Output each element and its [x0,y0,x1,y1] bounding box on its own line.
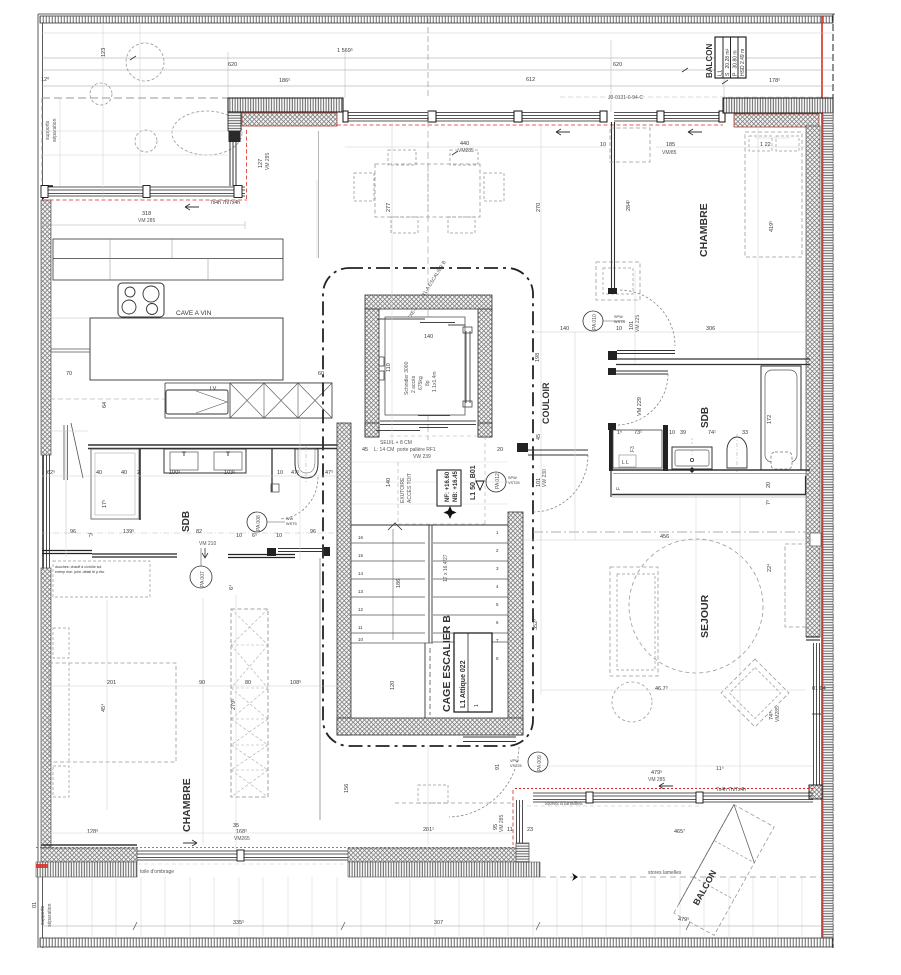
svg-text:VM285: VM285 [458,148,474,154]
svg-text:PA 010: PA 010 [592,314,598,330]
svg-text:15: 15 [358,553,364,558]
svg-text:SEUIL + 8 CM: SEUIL + 8 CM [380,440,412,446]
svg-text:456: 456 [660,534,669,540]
svg-text:140: 140 [424,334,433,340]
svg-text:14: 14 [358,571,364,576]
svg-text:479⁵: 479⁵ [678,916,689,923]
svg-text:7x4h 7h/7x4h: 7x4h 7h/7x4h [716,787,746,793]
svg-text:douches: chauff à c/chôle sol: douches: chauff à c/chôle sol [55,565,101,569]
svg-text:NF: +16.60: NF: +16.60 [445,471,451,502]
svg-text:620: 620 [613,62,622,68]
svg-text:7⁵: 7⁵ [88,532,93,539]
svg-text:L L: L L [622,460,629,466]
svg-text:108⁵: 108⁵ [290,679,301,686]
svg-text:201: 201 [107,680,116,686]
svg-text:CAVE A VIN: CAVE A VIN [176,310,212,317]
svg-text:VM 285: VM 285 [648,777,665,783]
svg-text:1 569⁵: 1 569⁵ [337,47,353,54]
svg-text:WSTS: WSTS [614,320,625,324]
svg-text:270: 270 [536,203,542,212]
svg-text:440: 440 [460,141,469,147]
svg-text:10: 10 [276,533,282,539]
svg-text:17⁵: 17⁵ [101,500,108,508]
svg-text:10: 10 [277,470,283,476]
svg-text:318: 318 [142,211,151,217]
svg-text:VM 285: VM 285 [138,218,155,224]
svg-text:6⁴: 6⁴ [228,584,235,590]
svg-text:279⁵: 279⁵ [230,699,237,710]
svg-text:335⁵: 335⁵ [233,919,244,926]
svg-text:WSTS: WSTS [286,522,297,526]
svg-text:90: 90 [199,680,205,686]
svg-text:01 04: 01 04 [812,686,826,692]
svg-text:277: 277 [386,203,392,212]
svg-text:11: 11 [507,827,513,833]
svg-text:EXUTOIRE: EXUTOIRE [400,477,406,503]
svg-text:Schindler 3000: Schindler 3000 [404,361,410,395]
svg-text:352³: 352³ [533,619,539,630]
svg-text:140: 140 [560,326,569,332]
svg-text:70: 70 [66,371,72,377]
svg-text:1: 1 [474,704,480,707]
svg-text:10: 10 [600,142,606,148]
svg-text:10: 10 [669,430,675,436]
svg-text:74¹: 74¹ [708,430,716,436]
svg-text:8p: 8p [425,380,431,386]
svg-text:120: 120 [390,681,396,690]
svg-text:73¹: 73¹ [634,430,642,436]
svg-text:306: 306 [706,326,715,332]
svg-text:COULOIR: COULOIR [541,382,551,424]
svg-text:45: 45 [536,434,542,440]
svg-text:10: 10 [236,533,242,539]
svg-text:1.1x1.4m: 1.1x1.4m [432,371,438,392]
svg-text:LV: LV [210,386,217,392]
svg-text:103⁵: 103⁵ [224,469,235,476]
svg-text:SDB: SDB [700,407,711,428]
svg-text:F3: F3 [630,446,636,452]
svg-text:123: 123 [101,48,107,57]
svg-text:L1: L1 [718,70,724,76]
svg-text:VST25: VST25 [508,481,520,485]
svg-text:39: 39 [680,430,686,436]
svg-text:96: 96 [70,529,76,535]
svg-text:2 accès: 2 accès [411,375,417,393]
svg-text:127: 127 [258,159,264,168]
svg-text:VPW: VPW [510,759,519,763]
svg-text:10: 10 [616,326,622,332]
svg-text:45⁴: 45⁴ [100,703,107,712]
svg-text:J0-0131-0-94-C: J0-0131-0-94-C [608,95,643,101]
svg-text:VM 285: VM 285 [499,815,505,832]
svg-text:140: 140 [386,478,392,487]
svg-text:12: 12 [358,607,364,612]
svg-text:séparation: séparation [47,903,53,927]
svg-text:62⁵: 62⁵ [47,469,55,476]
svg-text:46.7³: 46.7³ [655,686,668,692]
svg-text:419⁵: 419⁵ [768,221,775,232]
svg-text:SEJOUR: SEJOUR [699,594,711,638]
svg-text:VM 285: VM 285 [265,153,271,170]
svg-text:11: 11 [358,625,363,630]
svg-text:VM 229: VM 229 [637,397,643,416]
svg-text:33: 33 [742,430,748,436]
svg-text:100⁵: 100⁵ [169,469,180,476]
svg-text:47⁵: 47⁵ [325,469,333,476]
svg-text:96: 96 [310,529,316,535]
svg-text:CHAMBRE: CHAMBRE [181,778,193,832]
svg-text:VM265: VM265 [234,836,250,842]
svg-text:13: 13 [358,589,364,594]
svg-text:VM285: VM285 [775,706,781,722]
svg-text:620: 620 [228,62,237,68]
svg-text:VM 210: VM 210 [199,541,216,547]
svg-text:17 x 16.4/27: 17 x 16.4/27 [443,554,449,582]
svg-text:SPW: SPW [614,315,623,319]
svg-text:128⁵: 128⁵ [87,828,98,835]
svg-text:VM/85: VM/85 [662,150,677,156]
svg-text:172: 172 [767,415,773,424]
svg-text:6⁵: 6⁵ [252,532,257,539]
svg-text:64: 64 [102,402,108,408]
svg-text:675kg: 675kg [418,376,424,390]
svg-text:465⁷: 465⁷ [674,828,685,835]
svg-text:PA 007: PA 007 [200,571,206,587]
svg-text:40: 40 [121,470,127,476]
svg-text:82: 82 [196,529,202,535]
svg-text:139⁵: 139⁵ [123,528,134,535]
svg-text:281¹: 281¹ [423,827,434,833]
svg-text:entrep rise: joint. détail tê: entrep rise: joint. détail tê p.éto. [55,570,105,574]
svg-text:45: 45 [362,447,368,453]
svg-text:110: 110 [386,363,392,372]
svg-text:PA 008: PA 008 [256,515,262,531]
svg-text:stores à lamelles: stores à lamelles [545,801,583,807]
svg-text:séparation: séparation [52,118,58,142]
svg-text:01: 01 [32,902,38,908]
svg-text:198: 198 [535,353,541,362]
svg-text:SDB: SDB [181,511,192,532]
svg-text:307: 307 [434,920,443,926]
svg-text:VW 230: VW 230 [542,469,548,487]
svg-text:2: 2 [137,470,140,476]
svg-text:612: 612 [526,77,535,83]
svg-text:toile d'ombrage: toile d'ombrage [140,869,174,875]
svg-text:178⁵: 178⁵ [769,77,780,84]
svg-text:12⁰: 12⁰ [41,76,50,83]
svg-text:20: 20 [497,447,503,453]
svg-text:supports: supports [40,905,46,925]
svg-text:VM 225: VM 225 [635,315,641,332]
svg-text:stores lamelles: stores lamelles [648,870,682,876]
svg-text:CHAMBRE: CHAMBRE [698,203,710,257]
svg-text:F: F [616,487,622,490]
svg-text:VW 239: VW 239 [413,454,431,460]
svg-text:7³: 7³ [766,500,772,505]
svg-text:284¹: 284¹ [626,200,632,211]
svg-text:186⁵: 186⁵ [279,77,290,84]
svg-text:10: 10 [358,637,364,642]
svg-text:BALCON: BALCON [705,44,714,78]
svg-text:NB: +16.45: NB: +16.45 [453,470,459,502]
svg-text:L: 14 CM porte palière RF1: L: 14 CM porte palière RF1 [374,447,436,453]
svg-text:ACCÈS TOIT: ACCÈS TOIT [406,473,413,503]
svg-text:supports: supports [45,120,51,140]
svg-text:168¹: 168¹ [236,829,247,835]
svg-text:20: 20 [766,482,772,488]
svg-text:WW: WW [286,517,294,521]
svg-text:L1 Attique 022: L1 Attique 022 [460,660,467,708]
svg-text:47⁵: 47⁵ [291,469,299,476]
svg-text:16: 16 [358,535,364,540]
svg-text:S 20.28 m²: S 20.28 m² [725,48,731,76]
svg-text:186: 186 [396,579,402,588]
svg-text:479⁵: 479⁵ [651,769,662,776]
svg-text:7x4h 7h/7x4h: 7x4h 7h/7x4h [210,200,240,206]
svg-text:156: 156 [344,784,350,793]
svg-text:PA 009: PA 009 [537,755,543,771]
svg-text:40: 40 [96,470,102,476]
svg-text:80: 80 [245,680,251,686]
svg-text:22⁴: 22⁴ [766,563,773,572]
svg-text:23: 23 [527,827,533,833]
svg-text:91: 91 [495,764,501,770]
svg-text:SPW: SPW [508,476,517,480]
svg-text:CAGE ESCALIER B: CAGE ESCALIER B [441,615,453,712]
svg-text:P 30.80 m: P 30.80 m [733,50,739,76]
svg-text:L1 50_B01: L1 50_B01 [470,465,477,500]
svg-text:HSD 2.49 m: HSD 2.49 m [740,49,746,76]
svg-text:PA 012: PA 012 [495,473,501,489]
